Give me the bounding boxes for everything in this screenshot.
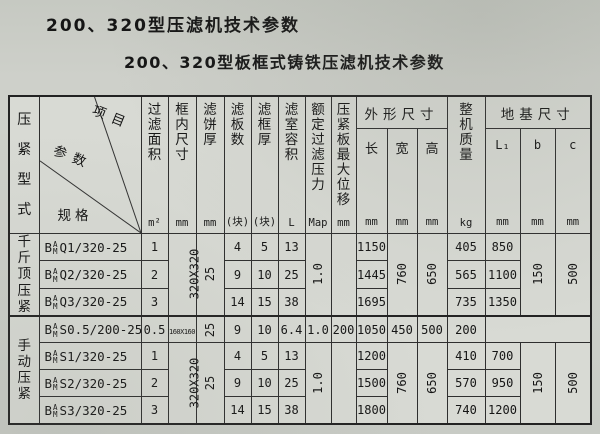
model-cell: BAMQ1/320-25 <box>39 234 141 261</box>
cell-displacement-empty <box>331 234 356 316</box>
width-unit: mm <box>396 216 409 228</box>
cell-pressure: 1.0 <box>305 316 331 343</box>
model-cell: BAMS1/320-25 <box>39 343 141 370</box>
group-label-manual: 手动压紧 <box>9 316 39 424</box>
l1-label: L₁ <box>495 138 509 152</box>
col-header-plate-max-displacement: 压紧板最大位移 mm <box>331 96 356 234</box>
cell-weight: 565 <box>447 261 485 288</box>
col-header-overall-dimensions: 外形尺寸 <box>356 96 447 129</box>
col-header-length: 长 mm <box>356 129 387 234</box>
cell-l1: 950 <box>485 370 520 397</box>
frame-thickness-unit: (块) <box>253 214 276 229</box>
cell-area: 0.5 <box>141 316 168 343</box>
l1-unit: mm <box>496 216 509 228</box>
height-unit: mm <box>426 216 439 228</box>
cell-width-merged: 760 <box>387 343 417 424</box>
table-row: BAMQ3/320-25 3 14 15 38 1695 735 1350 <box>9 288 591 316</box>
c-unit: mm <box>566 216 579 228</box>
overall-dimensions-label: 外形尺寸 <box>365 107 439 123</box>
cell-plate-count: 4 <box>224 234 251 261</box>
cell-weight: 410 <box>447 343 485 370</box>
cell-displacement: 200 <box>331 316 356 343</box>
cell-plate-count: 9 <box>224 316 251 343</box>
col-header-l1: L₁ mm <box>485 129 520 234</box>
cell-plate-count: 4 <box>224 343 251 370</box>
cell-frame-thickness: 15 <box>251 397 278 424</box>
corner-spec-label: 规格 <box>58 204 93 224</box>
col-header-c: c mm <box>555 129 591 234</box>
cell-weight: 735 <box>447 288 485 316</box>
cell-c-merged: 500 <box>555 234 591 316</box>
col-header-frame-thickness: 滤框厚 (块) <box>251 96 278 234</box>
cell-chamber-volume: 13 <box>278 343 305 370</box>
cell-chamber-volume: 6.4 <box>278 316 305 343</box>
c-label: c <box>569 138 576 152</box>
cake-thickness-label: 滤饼厚 <box>202 103 218 148</box>
foundation-dimensions-label: 地基尺寸 <box>501 107 575 123</box>
cell-displacement-empty <box>331 343 356 424</box>
cell-plate-count: 14 <box>224 288 251 316</box>
cell-length: 1200 <box>356 343 387 370</box>
chamber-volume-unit: L <box>288 217 294 229</box>
plate-count-label: 滤板数 <box>230 103 246 148</box>
col-header-press-type: 压紧型式 <box>9 96 39 234</box>
col-header-frame-inner-size: 框内尺寸 mm <box>168 96 196 234</box>
cell-chamber-volume: 25 <box>278 261 305 288</box>
cell-frame-size: 160X160 <box>168 316 196 343</box>
cake-thickness-unit: mm <box>204 217 217 229</box>
cell-length: 1695 <box>356 288 387 316</box>
cell-plate-count: 9 <box>224 261 251 288</box>
frame-thickness-label: 滤框厚 <box>257 103 273 148</box>
cell-frame-size-merged: 320X320 <box>168 343 196 424</box>
cell-length: 1050 <box>356 316 387 343</box>
displacement-label: 压紧板最大位移 <box>336 103 352 209</box>
cell-frame-thickness: 10 <box>251 316 278 343</box>
cell-cake-thickness: 25 <box>196 316 224 343</box>
spec-table: 压紧型式 项目 参数 规格 过滤面积 m² 框内尺寸 mm <box>8 95 592 425</box>
cell-frame-thickness: 5 <box>251 234 278 261</box>
cell-chamber-volume: 25 <box>278 370 305 397</box>
filter-area-label: 过滤面积 <box>147 103 163 163</box>
cell-chamber-volume: 38 <box>278 397 305 424</box>
cell-length: 1150 <box>356 234 387 261</box>
cell-weight: 405 <box>447 234 485 261</box>
model-sup-sub: AM <box>53 241 58 256</box>
height-label: 高 <box>425 138 438 157</box>
model-cell: BAMQ2/320-25 <box>39 261 141 288</box>
cell-chamber-volume: 13 <box>278 234 305 261</box>
width-label: 宽 <box>395 138 408 157</box>
col-header-chamber-volume: 滤室容积 L <box>278 96 305 234</box>
cell-area: 1 <box>141 343 168 370</box>
group-label-jack: 千斤顶压紧 <box>9 234 39 316</box>
cell-height-merged: 650 <box>417 343 447 424</box>
corner-cell: 项目 参数 规格 <box>39 96 141 234</box>
rated-pressure-label: 额定过滤压力 <box>310 103 326 194</box>
cell-frame-size-merged: 320X320 <box>168 234 196 316</box>
cell-weight: 200 <box>447 316 485 343</box>
cell-b-merged: 150 <box>520 343 555 424</box>
table-row: BAMS1/320-25 1 320X320 25 4 5 13 1.0 120… <box>9 343 591 370</box>
cell-l1: 1100 <box>485 261 520 288</box>
cell-area: 2 <box>141 261 168 288</box>
cell-l1: 850 <box>485 234 520 261</box>
cell-area: 1 <box>141 234 168 261</box>
cell-l1: 700 <box>485 343 520 370</box>
cell-weight: 740 <box>447 397 485 424</box>
cell-plate-count: 14 <box>224 397 251 424</box>
cell-height: 500 <box>417 316 447 343</box>
cell-pressure-merged: 1.0 <box>305 343 331 424</box>
cell-length: 1500 <box>356 370 387 397</box>
model-cell: BAMS0.5/200-25 <box>39 316 141 343</box>
cell-l1: 1200 <box>485 397 520 424</box>
table-row: 手动压紧 BAMS0.5/200-25 0.5 160X160 25 9 10 … <box>9 316 591 343</box>
col-header-b: b mm <box>520 129 555 234</box>
scanned-page: 200、320型压滤机技术参数 200、320型板框式铸铁压滤机技术参数 压紧型… <box>0 0 600 434</box>
col-header-machine-weight: 整机质量 kg <box>447 96 485 234</box>
col-header-width: 宽 mm <box>387 129 417 234</box>
length-label: 长 <box>365 138 378 157</box>
plate-count-unit: (块) <box>226 214 249 229</box>
model-cell: BAMQ3/320-25 <box>39 288 141 316</box>
rated-pressure-unit: Map <box>309 217 328 229</box>
cell-frame-thickness: 5 <box>251 343 278 370</box>
length-unit: mm <box>365 216 378 228</box>
model-cell: BAMS2/320-25 <box>39 370 141 397</box>
cell-foundation-empty <box>485 316 591 343</box>
cell-length: 1800 <box>356 397 387 424</box>
col-header-filter-area: 过滤面积 m² <box>141 96 168 234</box>
machine-weight-label: 整机质量 <box>458 103 474 163</box>
cell-width: 450 <box>387 316 417 343</box>
col-header-plate-count: 滤板数 (块) <box>224 96 251 234</box>
chamber-volume-label: 滤室容积 <box>284 103 300 163</box>
table-row: BAMS2/320-25 2 9 10 25 1500 570 950 <box>9 370 591 397</box>
filter-area-unit: m² <box>148 217 161 229</box>
b-unit: mm <box>531 216 544 228</box>
cell-weight: 570 <box>447 370 485 397</box>
table-row: BAMS3/320-25 3 14 15 38 1800 740 1200 <box>9 397 591 424</box>
cell-chamber-volume: 38 <box>278 288 305 316</box>
machine-weight-unit: kg <box>460 217 473 229</box>
col-header-rated-pressure: 额定过滤压力 Map <box>305 96 331 234</box>
frame-inner-label: 框内尺寸 <box>174 103 190 163</box>
cell-c-merged: 500 <box>555 343 591 424</box>
model-code: Q1/320-25 <box>60 240 128 255</box>
cell-frame-thickness: 15 <box>251 288 278 316</box>
cell-width-merged: 760 <box>387 234 417 316</box>
cell-frame-thickness: 10 <box>251 261 278 288</box>
table-row: BAMQ2/320-25 2 9 10 25 1445 565 1100 <box>9 261 591 288</box>
model-cell: BAMS3/320-25 <box>39 397 141 424</box>
cell-b-merged: 150 <box>520 234 555 316</box>
cell-length: 1445 <box>356 261 387 288</box>
cell-area: 3 <box>141 288 168 316</box>
col-header-height: 高 mm <box>417 129 447 234</box>
col-header-foundation-dimensions: 地基尺寸 <box>485 96 591 129</box>
frame-inner-unit: mm <box>176 217 189 229</box>
cell-plate-count: 9 <box>224 370 251 397</box>
model-prefix: B <box>45 240 53 255</box>
cell-l1: 1350 <box>485 288 520 316</box>
cell-area: 2 <box>141 370 168 397</box>
b-label: b <box>534 138 541 152</box>
cell-frame-thickness: 10 <box>251 370 278 397</box>
displacement-unit: mm <box>337 217 350 229</box>
table-row: 千斤顶压紧 BAMQ1/320-25 1 320X320 25 4 5 13 1… <box>9 234 591 261</box>
cell-pressure-merged: 1.0 <box>305 234 331 316</box>
page-subtitle: 200、320型板框式铸铁压滤机技术参数 <box>124 49 445 73</box>
col-header-cake-thickness: 滤饼厚 mm <box>196 96 224 234</box>
cell-height-merged: 650 <box>417 234 447 316</box>
page-title: 200、320型压滤机技术参数 <box>46 11 300 36</box>
cell-area: 3 <box>141 397 168 424</box>
press-type-label: 压紧型式 <box>16 105 32 225</box>
